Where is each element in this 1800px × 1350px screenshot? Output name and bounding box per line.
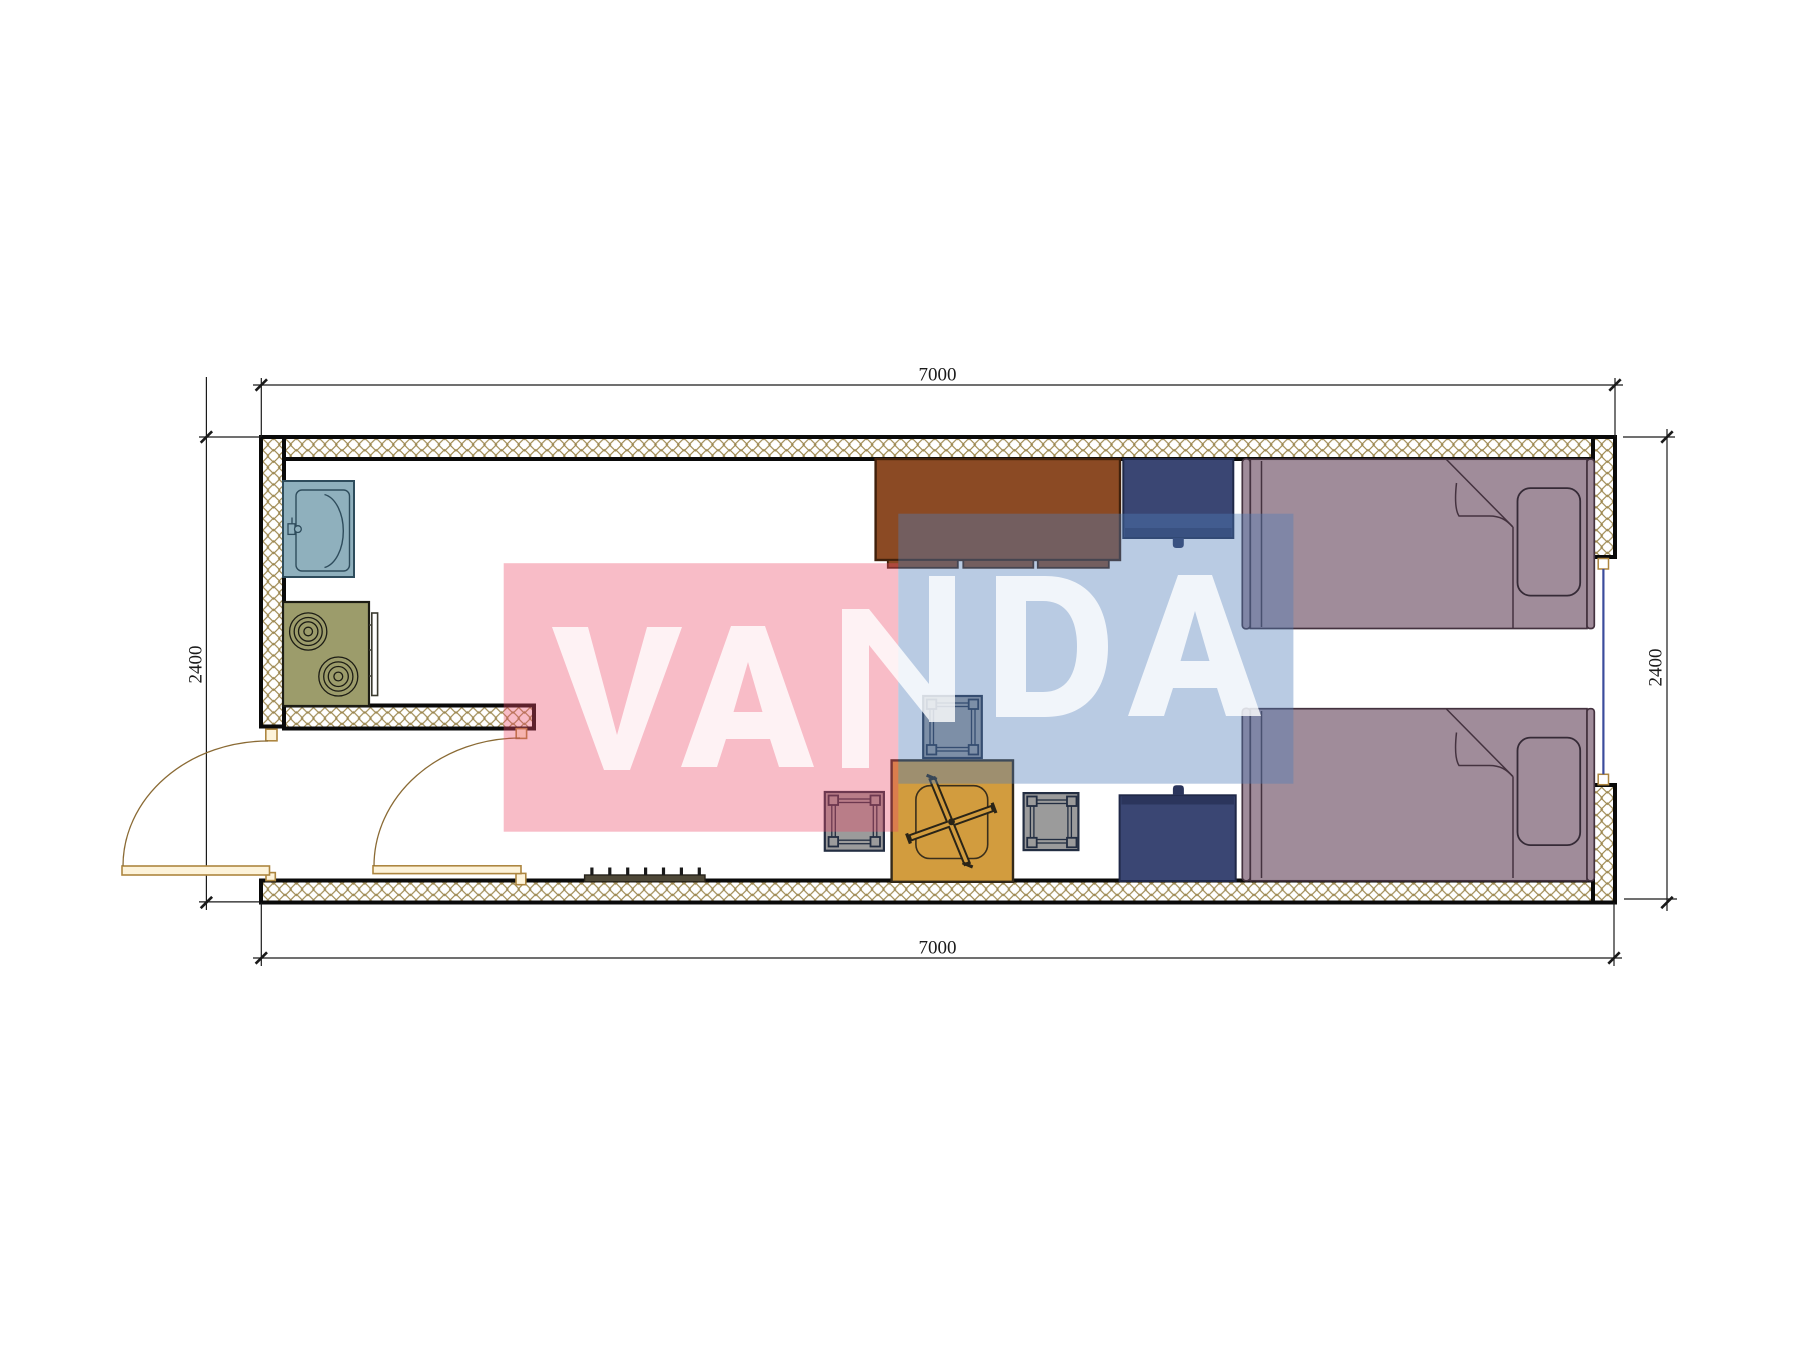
svg-text:7000: 7000 bbox=[919, 365, 957, 386]
svg-text:2400: 2400 bbox=[186, 646, 207, 684]
svg-text:2400: 2400 bbox=[1646, 649, 1667, 687]
svg-text:7000: 7000 bbox=[919, 938, 957, 959]
